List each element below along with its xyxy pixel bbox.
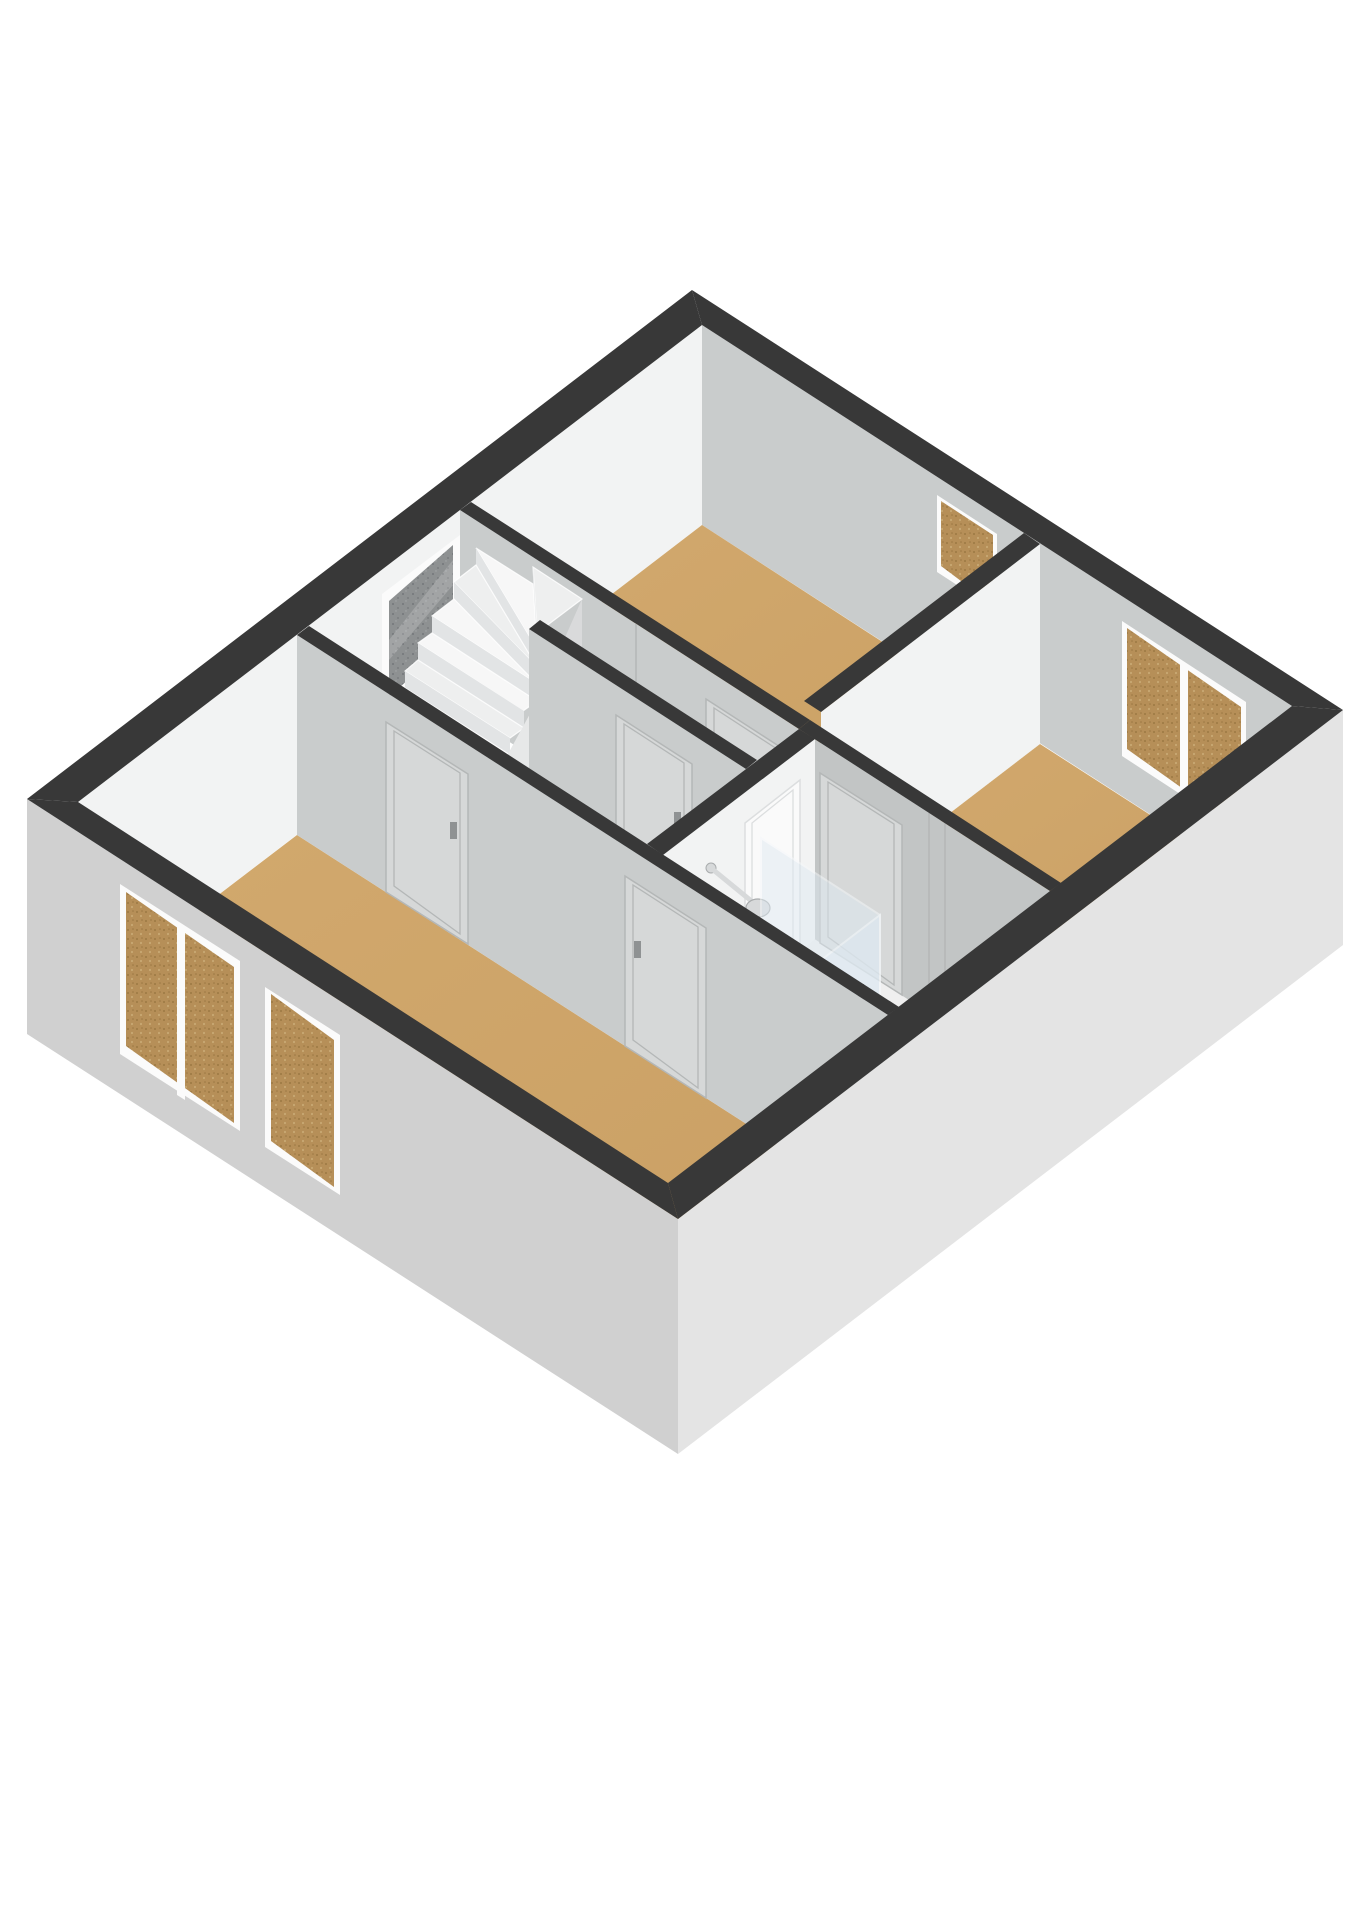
window-mullion — [177, 925, 185, 1100]
floorplan-stage — [0, 0, 1358, 1920]
door-handle — [450, 822, 457, 839]
door-handle — [634, 941, 641, 958]
floorplan-3d-canvas — [0, 0, 1358, 1920]
window-mullion — [1180, 661, 1188, 801]
